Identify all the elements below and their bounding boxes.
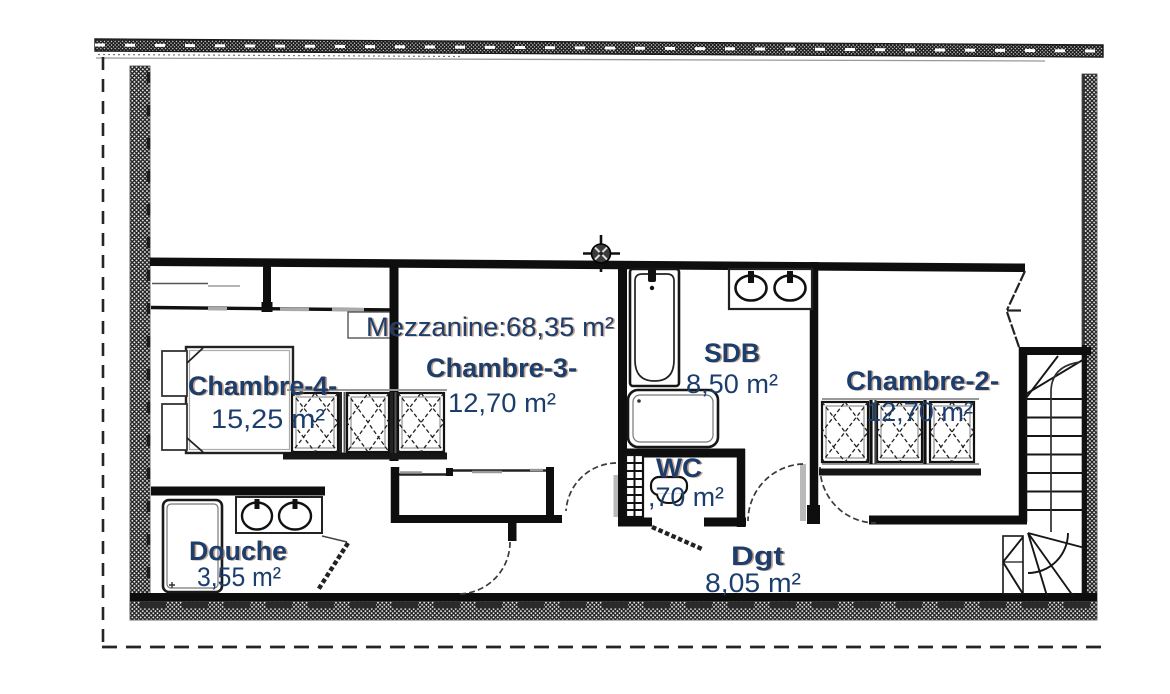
svg-text:Chambre-3-: Chambre-3- (426, 353, 577, 383)
svg-text:12,70 m²: 12,70 m² (866, 397, 973, 427)
svg-text:15,25 m²: 15,25 m² (211, 404, 325, 434)
svg-text:8,50 m²: 8,50 m² (686, 369, 778, 399)
svg-text:3,55 m²: 3,55 m² (197, 562, 281, 592)
svg-text:Dgt: Dgt (731, 541, 784, 571)
svg-text:12,70 m²: 12,70 m² (448, 388, 556, 418)
svg-text:Chambre-2-: Chambre-2- (846, 366, 999, 396)
svg-text:8,05 m²: 8,05 m² (705, 568, 801, 598)
svg-text:,70 m²: ,70 m² (648, 482, 724, 512)
svg-text:Mezzanine:68,35 m²: Mezzanine:68,35 m² (366, 312, 614, 342)
svg-text:SDB: SDB (704, 338, 760, 368)
svg-text:WC: WC (656, 453, 702, 483)
svg-text:Chambre-4-: Chambre-4- (188, 371, 337, 401)
